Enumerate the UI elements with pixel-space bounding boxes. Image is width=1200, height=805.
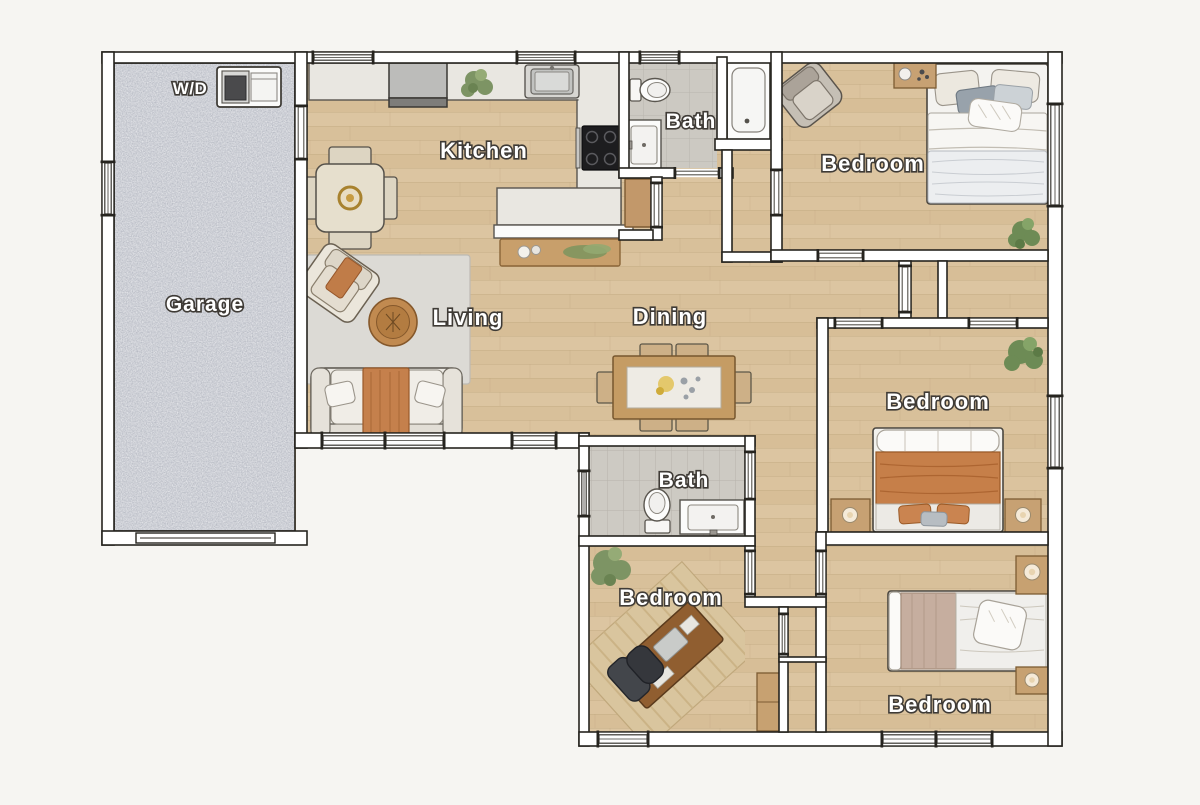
svg-text:W/D: W/D (173, 79, 208, 98)
svg-text:Kitchen: Kitchen (440, 138, 528, 163)
svg-text:Bedroom: Bedroom (888, 692, 992, 717)
svg-text:Bedroom: Bedroom (886, 389, 990, 414)
svg-text:Bedroom: Bedroom (821, 151, 925, 176)
svg-text:Garage: Garage (166, 293, 244, 316)
svg-text:Dining: Dining (633, 304, 707, 329)
svg-text:Bath: Bath (666, 110, 717, 133)
svg-text:Living: Living (433, 305, 504, 330)
svg-text:Bath: Bath (659, 469, 710, 492)
svg-text:Bedroom: Bedroom (619, 585, 723, 610)
